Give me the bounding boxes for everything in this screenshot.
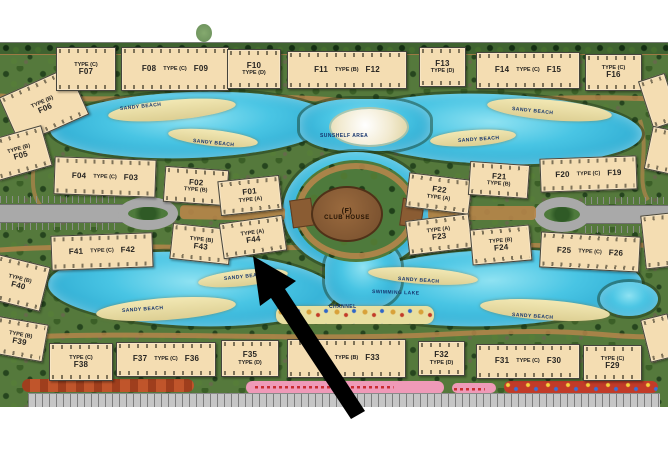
highlight-arrow-layer [0,0,668,452]
highlight-arrow [253,256,365,419]
masterplan-map: (F) CLUB HOUSE TYPE (B)F06TYPE (C)F07F08… [0,0,668,452]
